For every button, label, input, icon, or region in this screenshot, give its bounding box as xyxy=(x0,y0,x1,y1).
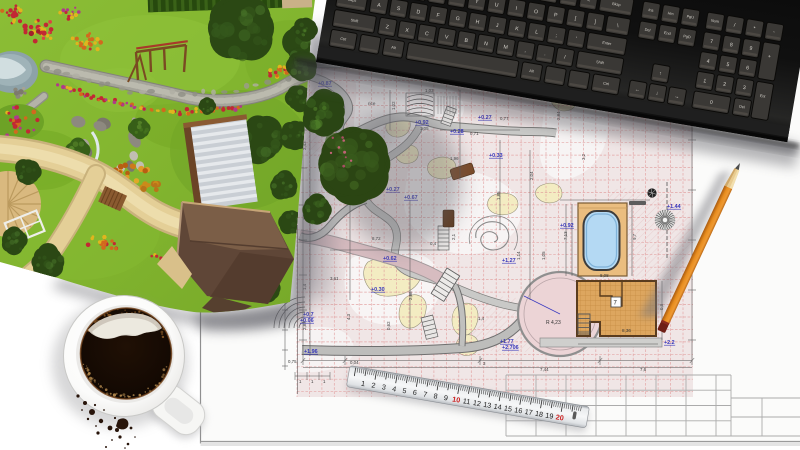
svg-text:1,85: 1,85 xyxy=(496,191,501,200)
svg-text:4,3: 4,3 xyxy=(346,313,351,320)
svg-text:←: ← xyxy=(634,87,640,94)
svg-text:0,71: 0,71 xyxy=(470,131,479,136)
svg-text:12: 12 xyxy=(472,398,481,408)
svg-text:2,88: 2,88 xyxy=(408,291,413,300)
svg-text:1,14: 1,14 xyxy=(516,251,521,260)
svg-text:20: 20 xyxy=(555,412,564,422)
svg-text:14: 14 xyxy=(493,402,502,412)
svg-text:19: 19 xyxy=(545,411,554,421)
svg-text:Ins: Ins xyxy=(648,8,654,13)
svg-text:R 4,23: R 4,23 xyxy=(546,320,561,326)
svg-text:9,7: 9,7 xyxy=(632,233,637,240)
svg-text:0,75: 0,75 xyxy=(288,359,297,364)
svg-text:2,04: 2,04 xyxy=(529,171,534,180)
svg-text:7,6: 7,6 xyxy=(640,367,647,372)
svg-text:7,44: 7,44 xyxy=(540,367,549,372)
svg-text:7,13: 7,13 xyxy=(563,231,568,240)
svg-text:17: 17 xyxy=(524,407,533,417)
svg-text:8,08: 8,08 xyxy=(600,273,609,278)
svg-text:13: 13 xyxy=(483,400,492,410)
svg-text:11: 11 xyxy=(462,396,471,406)
svg-text:8,36: 8,36 xyxy=(622,328,631,333)
svg-text:18: 18 xyxy=(534,409,543,419)
svg-text:16: 16 xyxy=(514,405,523,415)
svg-text:0,4: 0,4 xyxy=(430,241,437,246)
svg-text:10: 10 xyxy=(452,394,461,404)
svg-text:2,1: 2,1 xyxy=(451,233,456,240)
svg-text:0,04: 0,04 xyxy=(350,360,359,365)
svg-text:15: 15 xyxy=(503,403,512,413)
svg-text:→: → xyxy=(674,94,680,101)
svg-text:0,62: 0,62 xyxy=(386,321,391,330)
svg-text:1,05: 1,05 xyxy=(541,251,546,260)
svg-text:3,2: 3,2 xyxy=(581,153,586,160)
svg-text:1,4: 1,4 xyxy=(478,316,485,321)
